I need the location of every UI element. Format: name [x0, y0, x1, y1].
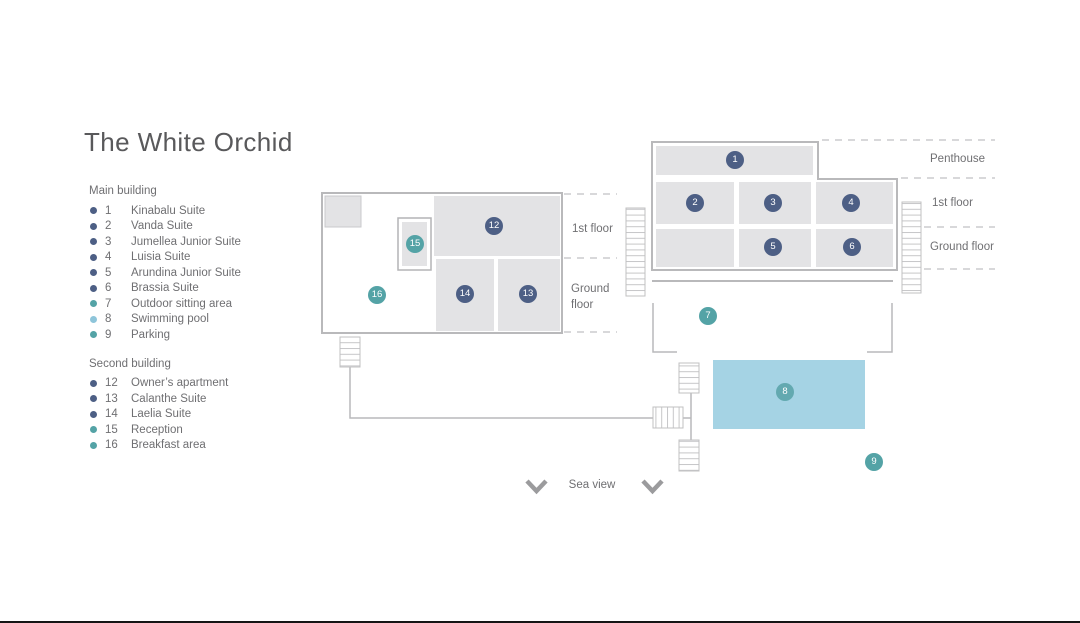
unit-dot-icon	[90, 285, 97, 292]
site-plan: The White Orchid Main building 1Kinabalu…	[0, 0, 1080, 623]
legend-item-number: 3	[105, 236, 131, 248]
legend-item-label: Calanthe Suite	[131, 393, 206, 405]
badge-room-5: 5	[764, 238, 782, 256]
badge-outdoor-sitting-area: 7	[699, 307, 717, 325]
legend-heading-main-building: Main building	[89, 185, 308, 197]
legend-item: 9Parking	[88, 327, 308, 343]
corner-room	[325, 196, 361, 227]
floor-label-second-ground-floor: Ground floor	[571, 281, 623, 313]
unit-dot-icon	[90, 269, 97, 276]
unit-dot-icon	[90, 380, 97, 387]
unit-dot-icon	[90, 442, 97, 449]
legend-item-number: 13	[105, 393, 131, 405]
unit-dot-icon	[90, 223, 97, 230]
legend-item-label: Arundina Junior Suite	[131, 267, 241, 279]
page-title: The White Orchid	[84, 127, 293, 158]
legend-item-label: Vanda Suite	[131, 220, 193, 232]
legend-item-label: Laelia Suite	[131, 408, 191, 420]
floor-label-second-1st-floor: 1st floor	[572, 223, 613, 235]
unit-dot-icon	[90, 254, 97, 261]
legend-item: 14Laelia Suite	[88, 407, 308, 423]
floor-label-penthouse: Penthouse	[930, 153, 985, 165]
legend-item-number: 4	[105, 251, 131, 263]
sea-view-label: Sea view	[552, 479, 632, 491]
unit-dot-icon	[90, 316, 97, 323]
outdoor-sitting-area	[652, 281, 893, 352]
legend-item-number: 6	[105, 282, 131, 294]
legend-item: 1Kinabalu Suite	[88, 203, 308, 219]
legend-item-label: Parking	[131, 329, 170, 341]
legend-item-number: 16	[105, 439, 131, 451]
badge-room-1: 1	[726, 151, 744, 169]
legend-item-number: 8	[105, 313, 131, 325]
badge-room-6: 6	[843, 238, 861, 256]
legend-item: 7Outdoor sitting area	[88, 296, 308, 312]
unit-dot-icon	[90, 300, 97, 307]
sea-view-arrow-icon	[643, 481, 662, 491]
unit-dot-icon	[90, 411, 97, 418]
legend-item-label: Brassia Suite	[131, 282, 199, 294]
legend-item-number: 14	[105, 408, 131, 420]
legend-item: 3Jumellea Junior Suite	[88, 234, 308, 250]
legend-item-label: Outdoor sitting area	[131, 298, 232, 310]
badge-room-12: 12	[485, 217, 503, 235]
badge-room-2: 2	[686, 194, 704, 212]
floor-label-main-1st-floor: 1st floor	[932, 197, 973, 209]
legend-item-number: 15	[105, 424, 131, 436]
legend-item: 13Calanthe Suite	[88, 391, 308, 407]
legend-item: 5Arundina Junior Suite	[88, 265, 308, 281]
unit-dot-icon	[90, 238, 97, 245]
unit-dot-icon	[90, 207, 97, 214]
badge-room-4: 4	[842, 194, 860, 212]
unit-dot-icon	[90, 395, 97, 402]
badge-breakfast-area: 16	[368, 286, 386, 304]
legend-item: 2Vanda Suite	[88, 219, 308, 235]
legend-item: 8Swimming pool	[88, 312, 308, 328]
badge-swimming-pool: 8	[776, 383, 794, 401]
legend-item: 15Reception	[88, 422, 308, 438]
stairs-icon	[626, 208, 645, 296]
walkway-path	[340, 337, 699, 471]
legend-item-label: Jumellea Junior Suite	[131, 236, 241, 248]
legend-item-number: 2	[105, 220, 131, 232]
floor-label-main-ground-floor: Ground floor	[930, 241, 994, 253]
badge-reception: 15	[406, 235, 424, 253]
stairs-icon	[653, 407, 683, 428]
legend-item-label: Reception	[131, 424, 183, 436]
badge-room-14: 14	[456, 285, 474, 303]
legend-item: 4Luisia Suite	[88, 250, 308, 266]
room-unnumbered	[656, 229, 734, 267]
unit-dot-icon	[90, 331, 97, 338]
badge-parking: 9	[865, 453, 883, 471]
legend-item-label: Luisia Suite	[131, 251, 190, 263]
legend-item-label: Owner’s apartment	[131, 377, 228, 389]
legend-item-number: 12	[105, 377, 131, 389]
legend-item: 12Owner’s apartment	[88, 376, 308, 392]
legend-item: 16Breakfast area	[88, 438, 308, 454]
legend-item-label: Breakfast area	[131, 439, 206, 451]
sea-view-arrow-icon	[527, 481, 546, 491]
stairs-icon	[679, 363, 699, 393]
stairs-icon	[340, 337, 360, 367]
unit-dot-icon	[90, 426, 97, 433]
legend-item-label: Swimming pool	[131, 313, 209, 325]
badge-room-3: 3	[764, 194, 782, 212]
stairs-icon	[902, 202, 921, 293]
legend-item-number: 1	[105, 205, 131, 217]
legend-item-number: 9	[105, 329, 131, 341]
legend-item-label: Kinabalu Suite	[131, 205, 205, 217]
legend-item-number: 7	[105, 298, 131, 310]
badge-room-13: 13	[519, 285, 537, 303]
legend-item-number: 5	[105, 267, 131, 279]
legend-heading-second-building: Second building	[89, 358, 308, 370]
legend-item: 6Brassia Suite	[88, 281, 308, 297]
stairs-icon	[679, 440, 699, 471]
legend: Main building 1Kinabalu Suite 2Vanda Sui…	[88, 185, 308, 453]
